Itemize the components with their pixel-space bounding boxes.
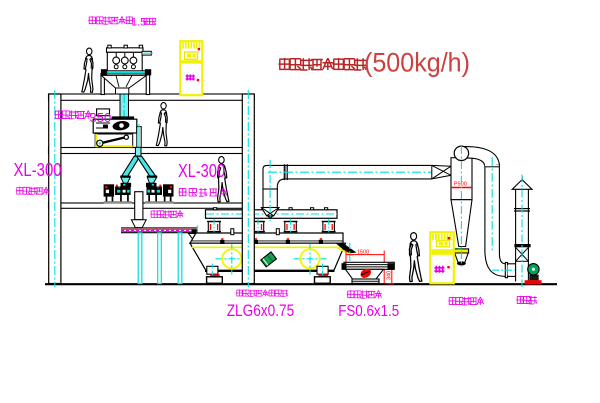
svg-text:P500: P500 [454,181,467,187]
svg-text:XL-300: XL-300 [178,161,225,181]
svg-text:FS0.6x1.5: FS0.6x1.5 [338,303,399,320]
svg-text:XL-300: XL-300 [14,160,62,180]
svg-text:(500kg/h): (500kg/h) [364,48,470,78]
svg-text:ZLG6x0.75: ZLG6x0.75 [227,301,295,320]
svg-text:350: 350 [90,110,112,125]
svg-text:340: 340 [387,271,393,280]
svg-text:1500: 1500 [357,250,369,256]
